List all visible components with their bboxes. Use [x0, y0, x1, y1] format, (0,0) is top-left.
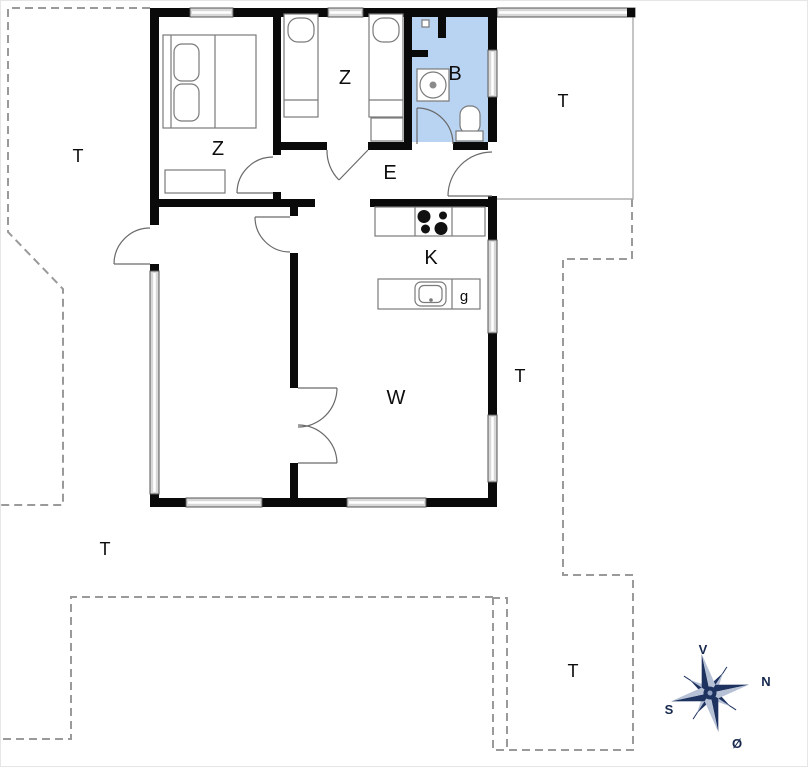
terrace-labels: T T T T T	[73, 91, 579, 681]
washbasin-icon	[417, 69, 449, 101]
window-north-1	[190, 8, 233, 17]
door-entrance-east	[448, 152, 492, 196]
room-label-entrance: E	[383, 162, 396, 184]
terrace-outlines-dashed	[0, 8, 633, 750]
terrace-label-west: T	[73, 146, 84, 166]
terrace-label-southwest: T	[100, 539, 111, 559]
compass-label-bottom: Ø	[732, 736, 742, 751]
room-label-appliance: g	[460, 288, 468, 305]
door-bedroom-large	[237, 157, 273, 193]
room-label-bathroom: B	[448, 63, 461, 85]
window-east-bathroom	[488, 50, 497, 97]
window-east-kitchen	[488, 240, 497, 333]
double-door-living	[298, 388, 337, 463]
kitchen-counter-stove	[375, 207, 485, 236]
terrace-label-east: T	[515, 366, 526, 386]
door-exterior-west	[114, 228, 150, 264]
compass-label-right: N	[761, 674, 770, 689]
compass-label-left: S	[665, 702, 674, 717]
terrace-east-outline	[490, 199, 633, 750]
compass-label-top: V	[699, 642, 708, 657]
single-bed-right-icon	[369, 14, 403, 141]
floor-plan-page: Z Z B E K W g T T T T T	[0, 0, 808, 768]
double-bed-icon	[163, 35, 256, 128]
terrace-south-outline	[0, 597, 507, 750]
window-south-1	[186, 498, 262, 507]
floor-plan-svg: Z Z B E K W g T T T T T	[0, 0, 808, 768]
terrace-label-northeast: T	[558, 91, 569, 111]
room-label-bedroom-large: Z	[212, 138, 224, 160]
window-south-2	[347, 498, 426, 507]
kitchen-sink-icon	[415, 282, 446, 306]
floor-drain-icon	[422, 20, 429, 27]
dresser-icon	[165, 170, 225, 193]
single-bed-left-icon	[284, 14, 318, 117]
compass-rose: V N S Ø	[663, 642, 771, 751]
terrace-west-outline	[0, 8, 150, 505]
terrace-rail-post	[627, 8, 635, 17]
nightstand-icon	[371, 118, 403, 141]
door-left-room	[255, 217, 290, 252]
window-east-living	[488, 415, 497, 482]
room-label-kitchen: K	[424, 247, 438, 269]
room-label-living: W	[387, 387, 406, 409]
window-west	[150, 271, 159, 494]
door-bedroom-small	[327, 150, 368, 180]
terrace-label-southeast: T	[568, 661, 579, 681]
room-label-bedroom-small: Z	[339, 67, 351, 89]
window-north-2	[328, 8, 363, 17]
